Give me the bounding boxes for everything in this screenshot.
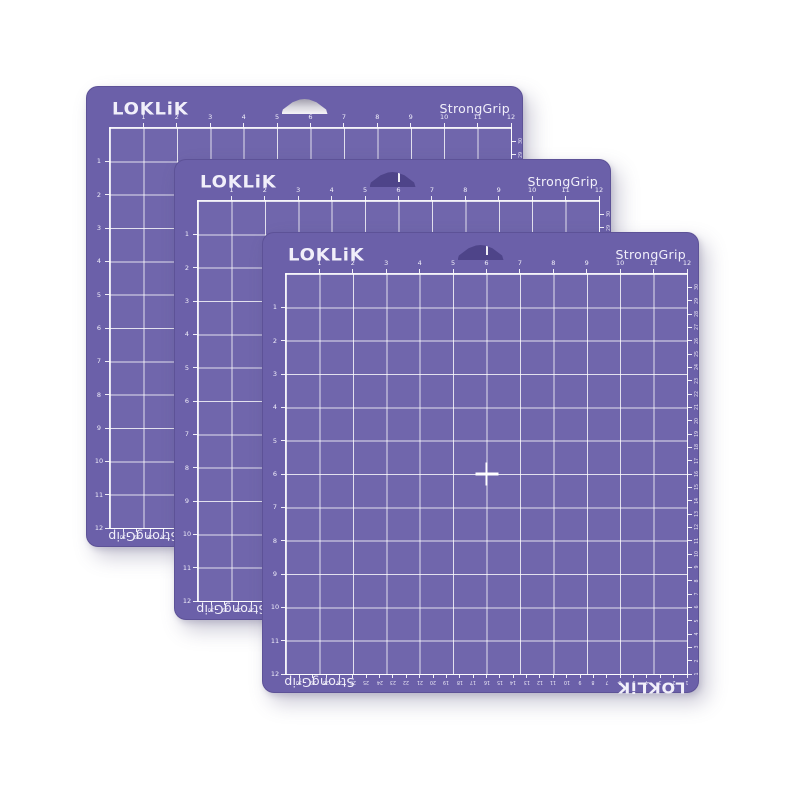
ruler-tick-right [687,340,692,341]
ruler-tick-right [687,594,692,595]
inch-number-left: 7 [185,431,189,438]
ruler-tick-top [264,196,265,200]
cm-number-right: 2 [695,659,700,662]
inch-number-top: 12 [595,187,603,194]
inch-number-left: 1 [273,304,277,311]
cm-number-right: 23 [695,378,700,384]
ruler-tick-left [193,534,197,535]
ruler-tick-right [687,647,692,648]
cm-number-bottom: 22 [403,680,409,685]
inch-number-left: 11 [271,637,279,644]
ruler-tick-top [532,196,533,200]
cm-number-right: 28 [695,311,700,317]
inch-number-left: 3 [185,298,189,305]
inch-number-top: 6 [396,187,400,194]
ruler-tick-right [687,660,692,661]
cm-number-right: 10 [695,551,700,557]
ruler-tick-top [377,123,378,127]
ruler-tick-top [352,269,353,273]
ruler-tick-bottom [419,674,420,678]
cm-number-right: 3 [695,646,700,649]
ruler-tick-right [687,327,692,328]
ruler-tick-top [498,196,499,200]
ruler-tick-left [105,228,109,229]
ruler-tick-right [687,407,692,408]
cm-number-bottom: 9 [579,680,582,685]
cm-number-right: 29 [519,152,524,158]
ruler-tick-right [687,434,692,435]
inch-number-top: 1 [317,260,321,267]
ruler-tick-bottom [620,674,621,678]
cm-number-bottom: 21 [417,680,423,685]
ruler-tick-left [281,540,285,541]
inch-number-top: 11 [649,260,657,267]
ruler-tick-top [231,196,232,200]
ruler-tick-left [193,501,197,502]
inch-number-left: 10 [95,458,103,465]
ruler-tick-left [105,161,109,162]
cm-number-right: 30 [519,138,524,144]
cm-number-right: 17 [695,458,700,464]
inch-number-left: 4 [97,258,101,265]
ruler-tick-right [687,620,692,621]
ruler-tick-left [193,434,197,435]
ruler-tick-top [565,196,566,200]
inch-number-left: 12 [183,598,191,605]
cm-number-bottom: 20 [430,680,436,685]
inch-number-left: 9 [273,571,277,578]
ruler-tick-right [687,314,692,315]
ruler-tick-top [365,196,366,200]
cm-number-bottom: 12 [537,680,543,685]
ruler-tick-bottom [486,674,487,678]
hole-tick [398,173,400,182]
ruler-tick-right [687,447,692,448]
inch-number-top: 2 [263,187,267,194]
ruler-tick-left [281,374,285,375]
inch-number-top: 7 [430,187,434,194]
ruler-tick-top [477,123,478,127]
ruler-tick-right [687,580,692,581]
ruler-tick-top [310,123,311,127]
cm-number-right: 5 [695,619,700,622]
ruler-tick-bottom [473,674,474,678]
ruler-tick-right [687,527,692,528]
ruler-tick-left [105,261,109,262]
ruler-tick-left [193,401,197,402]
ruler-tick-left [105,394,109,395]
inch-number-left: 5 [97,291,101,298]
inch-number-left: 10 [183,531,191,538]
hang-hole [282,99,328,114]
inch-number-left: 8 [185,464,189,471]
ruler-tick-top [486,269,487,273]
inch-number-left: 11 [95,491,103,498]
ruler-tick-top [319,269,320,273]
hole-tick [486,246,488,255]
cm-number-right: 11 [695,538,700,544]
ruler-tick-left [281,507,285,508]
ruler-tick-bottom [406,674,407,678]
ruler-tick-bottom [539,674,540,678]
ruler-tick-right [687,554,692,555]
ruler-tick-left [281,307,285,308]
ruler-tick-bottom [499,674,500,678]
cm-number-bottom: 18 [457,680,463,685]
ruler-tick-bottom [593,674,594,678]
ruler-tick-right [687,634,692,635]
cm-number-right: 26 [695,338,700,344]
ruler-tick-right [511,154,516,155]
ruler-tick-right [687,287,692,288]
cm-number-bottom: 7 [605,680,608,685]
ruler-tick-bottom [687,674,688,678]
cm-number-right: 25 [695,351,700,357]
ruler-tick-top [386,269,387,273]
inch-number-left: 1 [185,231,189,238]
ruler-tick-left [105,494,109,495]
inch-number-left: 9 [185,498,189,505]
ruler-tick-bottom [580,674,581,678]
ruler-tick-top [599,196,600,200]
ruler-tick-top [653,269,654,273]
inch-number-left: 6 [97,325,101,332]
ruler-tick-top [277,123,278,127]
ruler-tick-top [298,196,299,200]
cm-number-right: 21 [695,404,700,410]
ruler-tick-top [410,123,411,127]
grip-label-rotated: StrongGrip [108,529,178,544]
grip-label-rotated: StrongGrip [284,675,354,690]
inch-number-top: 2 [351,260,355,267]
inch-number-top: 4 [418,260,422,267]
ruler-tick-top [519,269,520,273]
ruler-tick-left [193,467,197,468]
ruler-tick-bottom [553,674,554,678]
cm-number-right: 29 [695,298,700,304]
inch-number-left: 5 [273,437,277,444]
ruler-tick-left [105,361,109,362]
ruler-tick-bottom [673,674,674,678]
inch-number-left: 10 [271,604,279,611]
cm-number-bottom: 10 [564,680,570,685]
cutting-mat-front: LOKLiK StrongGrip 1122334455667788991010… [262,232,699,693]
ruler-tick-top [343,123,344,127]
ruler-tick-right [687,380,692,381]
grip-label-rotated: StrongGrip [196,602,266,617]
ruler-tick-top [620,269,621,273]
ruler-tick-top [176,123,177,127]
inch-number-left: 2 [97,191,101,198]
inch-number-left: 4 [273,404,277,411]
inch-number-top: 5 [451,260,455,267]
inch-number-left: 9 [97,425,101,432]
inch-number-top: 9 [497,187,501,194]
product-photo: LOKLiK StrongGrip 1122334455667788991010… [0,0,800,800]
ruler-tick-left [193,267,197,268]
inch-number-left: 3 [97,225,101,232]
ruler-tick-top [444,123,445,127]
ruler-tick-bottom [660,674,661,678]
ruler-tick-left [281,574,285,575]
ruler-tick-right [599,214,604,215]
cm-number-right: 6 [695,606,700,609]
ruler-tick-top [586,269,587,273]
ruler-tick-left [105,461,109,462]
ruler-tick-right [687,354,692,355]
ruler-tick-right [687,567,692,568]
inch-number-top: 7 [518,260,522,267]
ruler-tick-bottom [459,674,460,678]
inch-number-top: 5 [275,114,279,121]
cm-number-right: 16 [695,471,700,477]
ruler-tick-bottom [513,674,514,678]
inch-number-left: 1 [97,158,101,165]
cm-number-right: 22 [695,391,700,397]
ruler-tick-left [193,234,197,235]
ruler-tick-right [687,514,692,515]
inch-number-left: 12 [271,671,279,678]
cm-number-bottom: 24 [377,680,383,685]
ruler-tick-top [553,269,554,273]
ruler-tick-top [453,269,454,273]
inch-number-top: 12 [683,260,691,267]
inch-number-top: 8 [375,114,379,121]
inch-number-left: 2 [273,337,277,344]
cm-number-bottom: 11 [550,680,556,685]
ruler-tick-bottom [366,674,367,678]
ruler-tick-top [687,269,688,273]
ruler-tick-top [243,123,244,127]
cm-number-right: 27 [695,324,700,330]
ruler-tick-right [687,394,692,395]
inch-number-left: 4 [185,331,189,338]
ruler-tick-top [419,269,420,273]
cm-number-bottom: 1 [685,680,688,685]
cm-number-right: 4 [695,632,700,635]
ruler-tick-right [687,500,692,501]
inch-number-top: 6 [308,114,312,121]
inch-number-top: 1 [229,187,233,194]
ruler-tick-right [687,540,692,541]
ruler-tick-left [281,407,285,408]
inch-number-left: 3 [273,371,277,378]
cm-number-right: 7 [695,592,700,595]
ruler-tick-right [687,674,692,675]
ruler-tick-left [193,301,197,302]
cm-number-right: 14 [695,498,700,504]
inch-number-top: 4 [242,114,246,121]
ruler-tick-top [143,123,144,127]
inch-number-top: 10 [616,260,624,267]
inch-number-top: 10 [528,187,536,194]
cm-number-right: 12 [695,524,700,530]
cm-number-right: 30 [695,284,700,290]
ruler-tick-top [511,123,512,127]
inch-number-top: 8 [463,187,467,194]
ruler-tick-bottom [446,674,447,678]
cm-number-bottom: 13 [524,680,530,685]
inch-number-top: 6 [484,260,488,267]
ruler-tick-left [281,640,285,641]
grid-crosshair [475,463,498,486]
ruler-tick-top [431,196,432,200]
inch-number-left: 11 [183,564,191,571]
ruler-tick-right [687,460,692,461]
inch-number-left: 7 [273,504,277,511]
inch-number-left: 7 [97,358,101,365]
inch-number-top: 8 [551,260,555,267]
inch-number-top: 11 [473,114,481,121]
cm-number-right: 9 [695,566,700,569]
cm-number-bottom: 14 [510,680,516,685]
inch-number-top: 5 [363,187,367,194]
cm-number-bottom: 15 [497,680,503,685]
cm-number-right: 1 [695,672,700,675]
inch-number-top: 11 [561,187,569,194]
cm-number-right: 13 [695,511,700,517]
cm-number-right: 15 [695,484,700,490]
ruler-tick-left [193,367,197,368]
ruler-tick-left [105,428,109,429]
cm-number-bottom: 16 [483,680,489,685]
ruler-tick-bottom [566,674,567,678]
ruler-tick-left [281,607,285,608]
cm-number-right: 30 [607,211,612,217]
cm-number-bottom: 25 [363,680,369,685]
ruler-tick-left [105,194,109,195]
inch-number-left: 8 [97,391,101,398]
cm-number-bottom: 19 [443,680,449,685]
cm-number-bottom: 23 [390,680,396,685]
ruler-tick-left [105,294,109,295]
ruler-tick-right [687,607,692,608]
ruler-tick-right [687,487,692,488]
ruler-tick-top [331,196,332,200]
inch-number-top: 10 [440,114,448,121]
ruler-tick-right [687,420,692,421]
inch-number-top: 7 [342,114,346,121]
hang-hole [370,172,416,187]
cm-number-bottom: 8 [592,680,595,685]
ruler-tick-right [687,474,692,475]
ruler-tick-left [281,440,285,441]
inch-number-top: 3 [296,187,300,194]
ruler-tick-top [465,196,466,200]
ruler-tick-bottom [606,674,607,678]
ruler-tick-left [281,340,285,341]
ruler-tick-bottom [379,674,380,678]
inch-number-top: 1 [141,114,145,121]
inch-number-top: 2 [175,114,179,121]
ruler-tick-bottom [633,674,634,678]
cm-number-bottom: 17 [470,680,476,685]
inch-number-top: 9 [409,114,413,121]
inch-number-top: 4 [330,187,334,194]
inch-number-top: 3 [384,260,388,267]
ruler-tick-left [281,474,285,475]
inch-number-top: 3 [208,114,212,121]
inch-number-left: 12 [95,525,103,532]
inch-number-left: 6 [185,398,189,405]
hang-hole [458,245,504,260]
inch-number-top: 12 [507,114,515,121]
ruler-tick-left [193,567,197,568]
ruler-tick-top [398,196,399,200]
ruler-tick-right [687,300,692,301]
cm-number-right: 18 [695,444,700,450]
ruler-tick-top [210,123,211,127]
ruler-tick-right [511,141,516,142]
ruler-tick-bottom [526,674,527,678]
cm-number-right: 24 [695,364,700,370]
inch-number-left: 2 [185,264,189,271]
ruler-tick-right [687,367,692,368]
brand-logo-rotated: LOKLiK [617,678,686,696]
inch-number-left: 6 [273,471,277,478]
ruler-tick-bottom [646,674,647,678]
measuring-grid: 1122334455667788991010111112123030292928… [285,273,688,675]
inch-number-left: 8 [273,537,277,544]
cm-number-right: 19 [695,431,700,437]
inch-number-top: 9 [585,260,589,267]
cm-number-right: 29 [607,225,612,231]
cm-number-right: 8 [695,579,700,582]
ruler-tick-right [599,227,604,228]
cm-number-right: 20 [695,418,700,424]
ruler-tick-bottom [433,674,434,678]
ruler-tick-bottom [392,674,393,678]
ruler-tick-left [105,328,109,329]
inch-number-left: 5 [185,364,189,371]
ruler-tick-left [193,334,197,335]
